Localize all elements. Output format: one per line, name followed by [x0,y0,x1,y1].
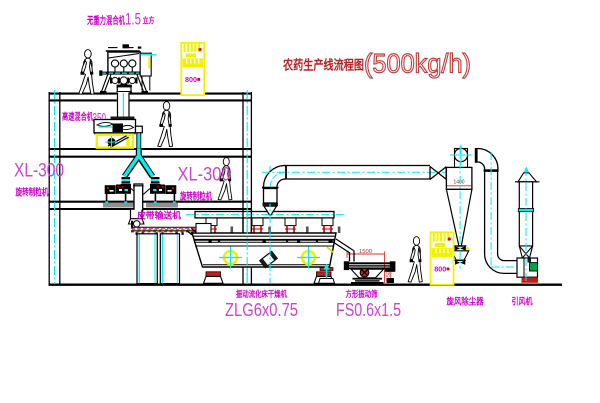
svg-text:XL-300: XL-300 [14,161,64,182]
svg-text:1.5: 1.5 [125,10,141,29]
svg-text:高速混合机: 高速混合机 [62,111,93,123]
svg-text:1400: 1400 [454,180,465,186]
svg-text:ZLG6x0.75: ZLG6x0.75 [225,299,298,320]
svg-text:立方: 立方 [143,16,155,26]
svg-text:振动流化床干燥机: 振动流化床干燥机 [236,289,287,299]
svg-text:引风机: 引风机 [512,296,533,307]
svg-text:XL-300: XL-300 [178,165,231,186]
svg-text:无重力混合机: 无重力混合机 [86,14,125,27]
svg-text:旋转制粒机: 旋转制粒机 [15,187,49,199]
svg-text:800: 800 [185,75,197,84]
svg-text:旋转制粒机: 旋转制粒机 [179,191,212,203]
svg-text:农药生产线流程图: 农药生产线流程图 [282,58,364,73]
svg-text:方形振动筛: 方形振动筛 [346,289,378,299]
svg-text:FS0.6x1.5: FS0.6x1.5 [336,299,401,320]
svg-text:皮带输送机: 皮带输送机 [136,210,181,221]
svg-text:1500: 1500 [359,249,372,255]
svg-text:(500kg/h): (500kg/h) [364,49,471,79]
svg-text:旋风除尘器: 旋风除尘器 [446,296,485,307]
svg-text:800: 800 [434,265,446,274]
